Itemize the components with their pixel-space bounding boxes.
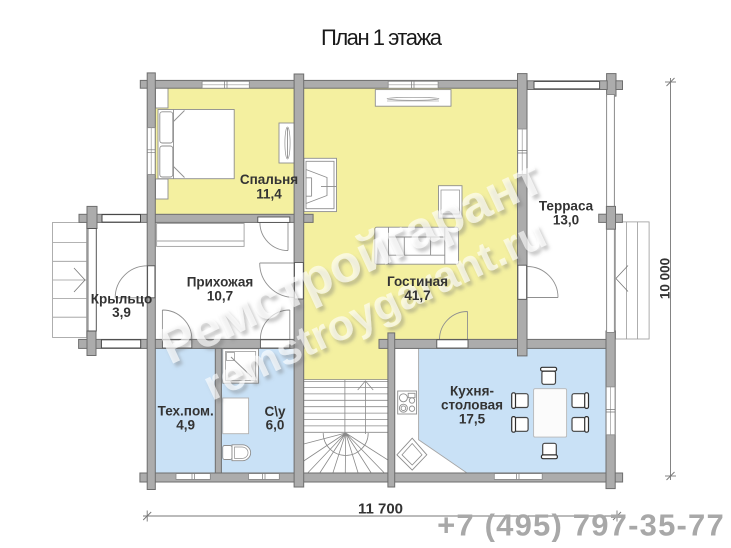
svg-text:41,7: 41,7 xyxy=(404,288,430,303)
svg-text:Кухня-: Кухня- xyxy=(450,384,494,399)
svg-text:Терраса: Терраса xyxy=(539,199,594,214)
svg-text:11 700: 11 700 xyxy=(358,501,403,518)
svg-text:13,0: 13,0 xyxy=(553,213,579,228)
svg-text:6,0: 6,0 xyxy=(266,418,285,433)
svg-text:Спальня: Спальня xyxy=(240,172,298,187)
svg-text:Тех.пом.: Тех.пом. xyxy=(158,404,214,419)
svg-text:План 1 этажа: План 1 этажа xyxy=(321,25,443,50)
svg-text:+7 (495) 797-35-77: +7 (495) 797-35-77 xyxy=(437,508,725,543)
svg-text:столовая: столовая xyxy=(441,398,503,413)
svg-text:3,9: 3,9 xyxy=(112,305,131,320)
svg-text:10 000: 10 000 xyxy=(658,258,673,299)
svg-text:17,5: 17,5 xyxy=(459,412,486,427)
svg-text:11,4: 11,4 xyxy=(256,187,282,202)
svg-text:10,7: 10,7 xyxy=(207,289,233,304)
svg-text:Гостиная: Гостиная xyxy=(387,274,448,289)
svg-text:4,9: 4,9 xyxy=(176,418,195,433)
svg-text:Прихожая: Прихожая xyxy=(187,275,254,290)
